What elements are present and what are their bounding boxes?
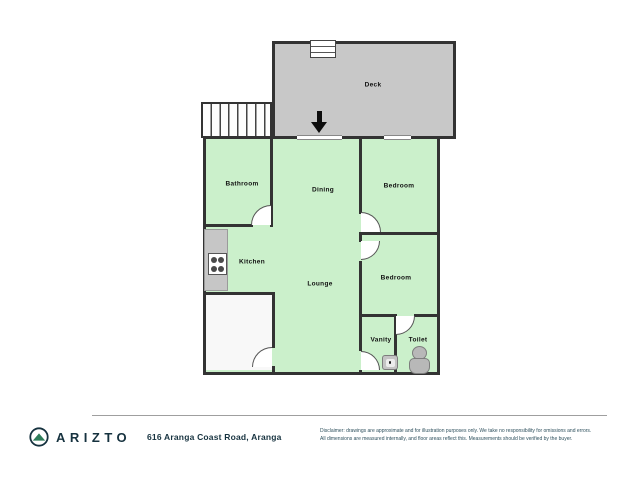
floor-plan-page: Deck Bathroom Dining Bedroom Kitchen Lou… [0, 0, 639, 479]
sink-basin [386, 359, 395, 367]
entry-window [297, 135, 342, 140]
arizto-logo-icon [29, 427, 49, 447]
disclaimer-line-2: All dimensions are measured internally, … [320, 435, 610, 443]
wall-storeroom-right-b [272, 366, 275, 375]
bathroom-label: Bathroom [225, 181, 258, 188]
wall-center-divider-d [359, 370, 362, 375]
deck-label: Deck [365, 82, 382, 89]
bedroom-window [384, 135, 411, 140]
wall-center-divider-c [359, 261, 362, 351]
footer-divider [92, 415, 607, 416]
dining-label: Dining [312, 187, 334, 194]
wall-bedroom-divider [359, 232, 440, 235]
property-address: 616 Aranga Coast Road, Aranga [147, 432, 282, 442]
entry-arrow-head-icon [311, 122, 327, 133]
stairs-icon [201, 102, 272, 138]
bedroom-bottom-label: Bedroom [381, 275, 412, 282]
toilet-label: Toilet [409, 337, 428, 344]
disclaimer-line-1: Disclaimer: drawings are approximate and… [320, 427, 610, 435]
disclaimer-text: Disclaimer: drawings are approximate and… [320, 427, 610, 443]
lounge-label: Lounge [307, 281, 332, 288]
deck-area [272, 41, 456, 139]
wall-bathroom-bottom [203, 224, 253, 227]
toilet-bowl-icon [409, 358, 430, 374]
deck-steps-icon [310, 40, 336, 58]
wall-vanity-top-left [359, 314, 397, 317]
sink-icon [382, 355, 398, 370]
stove-burner [211, 266, 217, 272]
bedroom-top-label: Bedroom [384, 183, 415, 190]
stove-burner [218, 266, 224, 272]
brand-name: ARIZTO [56, 430, 131, 445]
wall-center-divider-a [359, 136, 362, 214]
kitchen-label: Kitchen [239, 259, 265, 266]
wall-storeroom-right-a [272, 292, 275, 348]
stove-burner [218, 257, 224, 263]
vanity-label: Vanity [371, 337, 392, 344]
stove-icon [208, 253, 227, 275]
sink-drain [389, 361, 392, 364]
wall-vanity-top-right [414, 314, 440, 317]
stove-burner [211, 257, 217, 263]
